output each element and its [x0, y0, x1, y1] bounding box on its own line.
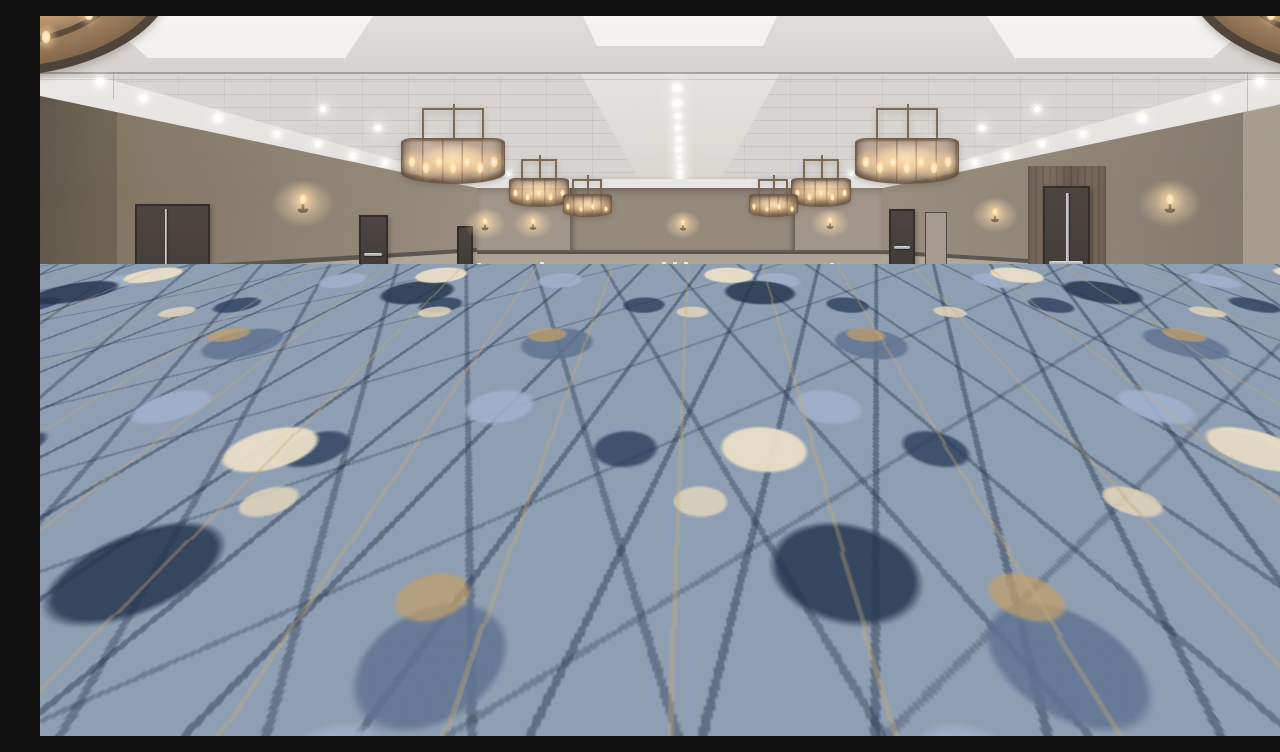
chandelier-flame-icon [842, 189, 847, 197]
sconce-lamp-icon [681, 219, 686, 225]
door-panel [925, 212, 947, 276]
wall-outlet [830, 263, 834, 269]
door-kick-plate [141, 302, 201, 314]
wall-outlet [1123, 296, 1127, 302]
corner-drum-chandelier [1185, 16, 1280, 77]
chandelier-flame-icon [765, 206, 769, 212]
corner-drum-chandelier [40, 16, 175, 77]
sconce-lamp-icon [299, 194, 307, 205]
drum-chandelier [509, 159, 569, 207]
chandelier-inner-ring-icon [40, 16, 127, 47]
sconce-lamp-icon [992, 208, 998, 216]
chandelier-flame-icon [807, 193, 812, 201]
chandelier-flame-icon [944, 156, 952, 169]
chandelier-flame-icon [449, 161, 457, 174]
chandelier-frame-icon [422, 108, 484, 141]
wall-outlet [1138, 298, 1142, 304]
chandelier-flame-icon [566, 203, 570, 209]
drum-chandelier [749, 179, 798, 217]
ballroom-photo: Empty hotel ballroom [40, 16, 1280, 736]
wall-outlet [294, 288, 298, 294]
drum-chandelier [855, 108, 959, 184]
chandelier-mesh-straps [564, 195, 611, 216]
door-plain-bar [359, 215, 388, 284]
chandelier-flame-icon [408, 156, 416, 169]
wall-outlet [673, 262, 677, 268]
chandelier-flame-icon [548, 193, 553, 201]
chandelier-flame-icon [579, 206, 583, 212]
chandelier-flame-icon [790, 206, 794, 212]
sconce-lamp-icon [827, 217, 832, 224]
chandelier-flame-icon [41, 30, 51, 44]
chandelier-drum [749, 194, 798, 217]
sconce-lamp-icon [1166, 194, 1174, 205]
chandelier-drum [563, 194, 612, 217]
door-push-bar [1049, 261, 1083, 265]
chandelier-flame-icon [422, 161, 430, 174]
door-vertical-rod [1066, 193, 1069, 296]
chandelier-flame-icon [752, 203, 756, 209]
chandelier-flame-icon [830, 193, 835, 201]
wall-outlet [540, 262, 544, 268]
chandelier-flame-icon [862, 156, 870, 169]
chandelier-drum [791, 178, 851, 207]
chandelier-flame-icon [917, 156, 925, 169]
sconce-lamp-icon [482, 218, 487, 225]
chandelier-flame-icon [476, 161, 484, 174]
chandelier-flame-icon [525, 193, 530, 201]
drum-chandelier [791, 159, 851, 207]
chandelier-mesh-straps [750, 195, 797, 216]
wall-outlet [662, 262, 666, 268]
drum-chandelier [563, 179, 612, 217]
door-plain-bar [889, 209, 915, 277]
door-panic-left [135, 204, 210, 318]
door-push-bar [143, 264, 197, 268]
chandelier-flame-icon [903, 161, 911, 174]
chandelier-drum [509, 178, 569, 207]
chandelier-flame-icon [591, 203, 595, 209]
door-panic-right [1043, 186, 1090, 307]
drum-chandelier [401, 108, 505, 184]
door-closer-rod [165, 209, 167, 265]
chandelier-flame-icon [876, 161, 884, 174]
door-push-bar [894, 246, 910, 249]
chandelier-flame-icon [604, 206, 608, 212]
wall-outlet [684, 262, 688, 268]
chandelier-inner-ring-icon [1233, 16, 1280, 47]
sconce-lamp-icon [530, 218, 535, 225]
door-kick-plate [1048, 292, 1084, 303]
fixtures-layer [40, 16, 1280, 736]
wall-outlet [282, 288, 286, 294]
chandelier-flame-icon [777, 203, 781, 209]
chandelier-flame-icon [490, 156, 498, 169]
wall-outlet [477, 263, 481, 269]
chandelier-frame-icon [876, 108, 938, 141]
door-push-bar [364, 253, 382, 256]
chandelier-drum [401, 138, 505, 184]
chandelier-flame-icon [463, 156, 471, 169]
chandelier-drum [855, 138, 959, 184]
chandelier-flame-icon [930, 161, 938, 174]
